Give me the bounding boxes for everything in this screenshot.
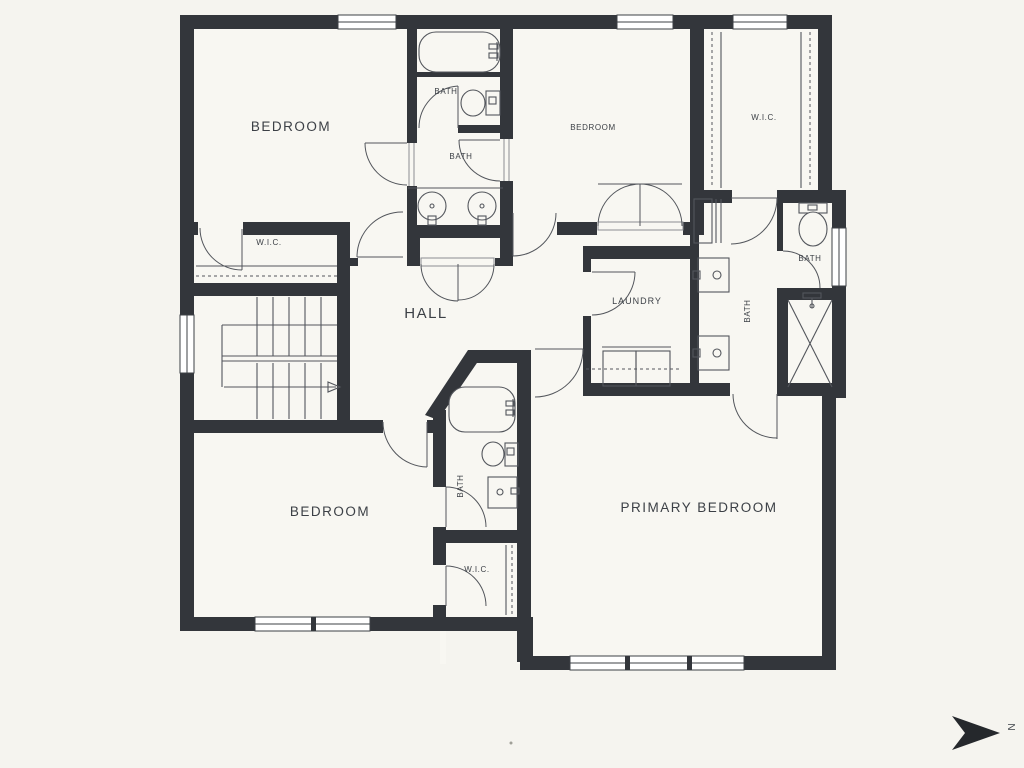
label-wic-top-right: W.I.C. bbox=[751, 113, 776, 122]
label-hall: HALL bbox=[404, 305, 448, 322]
floor-plan-page: BEDROOM BEDROOM W.I.C. BATH BATH HALL W.… bbox=[0, 0, 1024, 768]
north-arrow-icon: N bbox=[952, 716, 1016, 750]
label-bath-top-toilet: BATH bbox=[434, 87, 457, 96]
print-artifact-dot bbox=[510, 742, 513, 745]
floor-plan: BEDROOM BEDROOM W.I.C. BATH BATH HALL W.… bbox=[0, 0, 1024, 768]
label-bedroom-top-right: BEDROOM bbox=[570, 123, 616, 132]
label-bath-primary: BATH bbox=[743, 299, 752, 322]
label-wic-bottom-center: W.I.C. bbox=[464, 565, 489, 574]
compass-north-label: N bbox=[1005, 723, 1016, 730]
label-bedroom-top-left: BEDROOM bbox=[251, 119, 331, 134]
label-laundry: LAUNDRY bbox=[612, 296, 662, 306]
window bbox=[832, 228, 846, 286]
window bbox=[180, 315, 194, 373]
window bbox=[255, 617, 370, 631]
label-bath-top-shared: BATH bbox=[449, 152, 472, 161]
label-wic-left: W.I.C. bbox=[256, 238, 281, 247]
label-bath-primary-toilet: BATH bbox=[798, 254, 821, 263]
window bbox=[570, 656, 744, 670]
window bbox=[338, 15, 396, 29]
label-bath-center: BATH bbox=[456, 474, 465, 497]
label-primary-bedroom: PRIMARY BEDROOM bbox=[620, 500, 777, 515]
window bbox=[617, 15, 673, 29]
label-bedroom-bottom-left: BEDROOM bbox=[290, 504, 370, 519]
bathtub-icon bbox=[449, 387, 515, 432]
bathtub-icon bbox=[419, 32, 500, 72]
window bbox=[733, 15, 787, 29]
